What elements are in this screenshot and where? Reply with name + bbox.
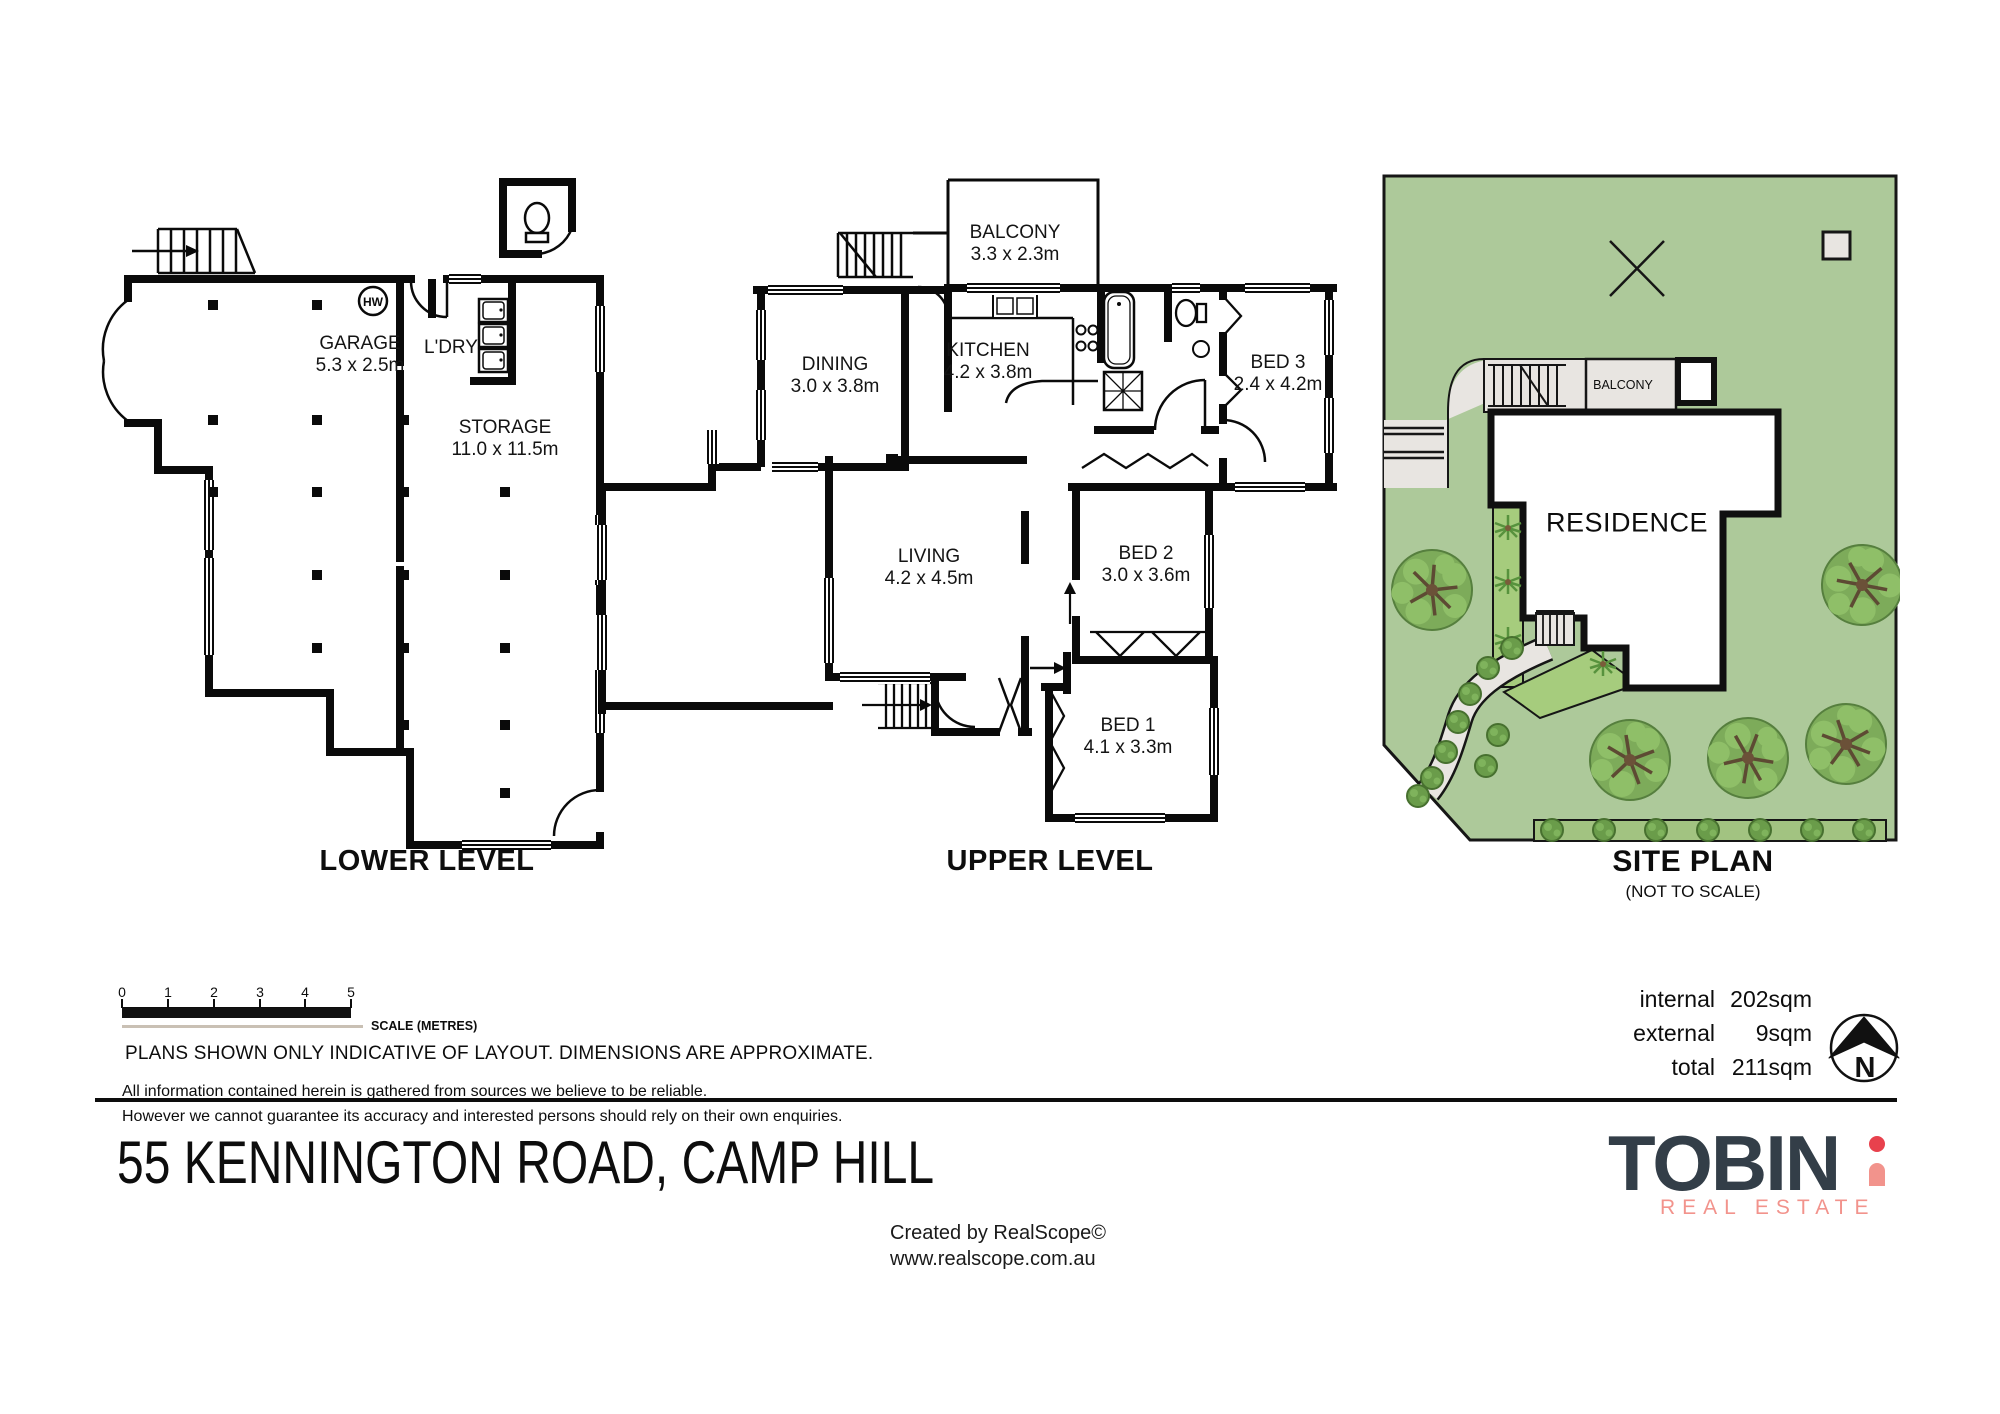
site-plan-subtitle: (NOT TO SCALE)	[1625, 882, 1760, 902]
north-arrow-icon: N	[1827, 1011, 1901, 1085]
room-label-garage: GARAGE5.3 x 2.5m	[316, 333, 405, 377]
upper-level-plan	[590, 170, 1345, 860]
room-label-dining: DINING3.0 x 3.8m	[791, 354, 880, 398]
scale-underline	[122, 1025, 363, 1028]
floorplan-page: HW	[0, 0, 2000, 1414]
site-balcony-label: BALCONY	[1593, 378, 1653, 392]
room-label-bed1: BED 14.1 x 3.3m	[1084, 715, 1173, 759]
upper-level-title: UPPER LEVEL	[947, 845, 1154, 878]
footer-divider	[95, 1098, 1897, 1102]
toilet-icon	[525, 203, 549, 242]
property-address: 55 KENNINGTON ROAD, CAMP HILL	[117, 1128, 934, 1197]
credit-line1: Created by RealScope©	[890, 1220, 1106, 1246]
brand-colon-dot-icon	[1869, 1136, 1885, 1152]
brand-tagline: REAL ESTATE	[1660, 1196, 1862, 1220]
room-label-bed2: BED 23.0 x 3.6m	[1102, 543, 1191, 587]
lower-level-plan: HW	[90, 170, 610, 860]
residence-label: RESIDENCE	[1546, 508, 1708, 539]
utility-square	[1823, 232, 1850, 259]
lower-windows	[202, 272, 607, 852]
svg-text:2: 2	[210, 984, 218, 1000]
laundry-tubs-icon	[479, 299, 508, 372]
scale-numbers: 0 1 2 3 4 5	[118, 984, 355, 1000]
cooktop-icon	[1077, 326, 1098, 351]
sink-icon	[993, 294, 1037, 318]
svg-text:1: 1	[164, 984, 172, 1000]
room-label-living: LIVING4.2 x 4.5m	[885, 546, 974, 590]
credit-line2: www.realscope.com.au	[890, 1246, 1106, 1272]
svg-text:5: 5	[347, 984, 355, 1000]
svg-text:0: 0	[118, 984, 126, 1000]
room-label-kitchen: KITCHEN4.2 x 3.8m	[944, 340, 1033, 384]
area-summary: internal 202sqm external 9sqm total 211s…	[1597, 982, 1812, 1084]
hedge-row	[1534, 819, 1886, 841]
small-structure	[1678, 360, 1714, 403]
disclaimer-headline: PLANS SHOWN ONLY INDICATIVE OF LAYOUT. D…	[125, 1043, 873, 1065]
basin-icon	[1193, 341, 1209, 357]
credit-block: Created by RealScope© www.realscope.com.…	[890, 1220, 1106, 1272]
mid-stairs	[1536, 610, 1574, 645]
lower-level-title: LOWER LEVEL	[320, 845, 535, 878]
room-label-storage: STORAGE11.0 x 11.5m	[451, 417, 558, 461]
area-row-internal: internal 202sqm	[1597, 982, 1812, 1016]
svg-text:4: 4	[301, 984, 309, 1000]
hot-water-icon: HW	[359, 287, 387, 315]
pillar	[886, 454, 898, 466]
disclaimer-line2: However we cannot guarantee its accuracy…	[122, 1108, 842, 1126]
room-label-balcony: BALCONY3.3 x 2.3m	[970, 222, 1061, 266]
scale-bar: 0 1 2 3 4 5 SCALE (METRES)	[95, 975, 555, 1037]
toilet-icon	[1176, 300, 1206, 326]
brand-colon-arch-icon	[1869, 1163, 1885, 1186]
scale-bar-fill	[122, 1008, 351, 1018]
bathroom-fixtures	[1104, 292, 1209, 410]
scale-caption: SCALE (METRES)	[371, 1019, 477, 1033]
area-row-total: total 211sqm	[1597, 1050, 1812, 1084]
north-label: N	[1855, 1052, 1876, 1084]
lower-walls	[128, 182, 600, 845]
driveway	[1384, 420, 1446, 488]
hw-label: HW	[363, 295, 384, 309]
svg-text:3: 3	[256, 984, 264, 1000]
room-label-bed3: BED 32.4 x 4.2m	[1234, 352, 1323, 396]
bathtub-icon	[1104, 292, 1134, 368]
upper-stairs	[838, 233, 913, 277]
site-plan-title: SITE PLAN	[1612, 845, 1773, 879]
room-label-laundry: L'DRY	[424, 337, 478, 359]
area-row-external: external 9sqm	[1597, 1016, 1812, 1050]
garage-door-arcs	[103, 228, 600, 836]
shower-icon	[1104, 372, 1142, 410]
scale-ticks	[122, 999, 351, 1008]
